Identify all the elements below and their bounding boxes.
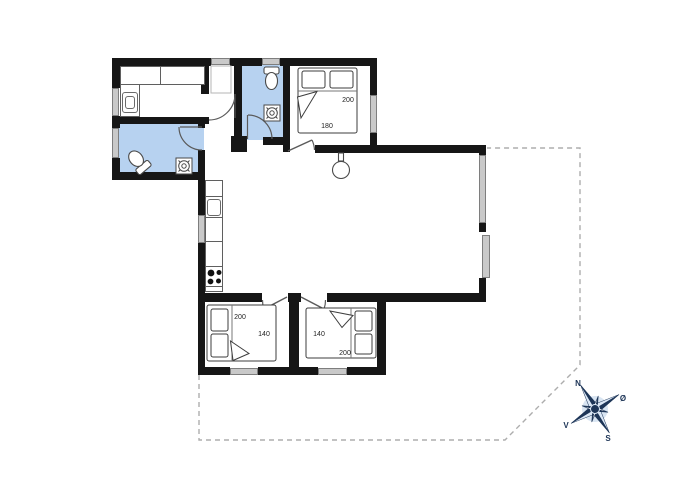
floorplan-canvas: 200 180 200 140 140 200 [0, 0, 700, 500]
plan-overlay: 200 180 200 140 140 200 [0, 0, 700, 500]
entrance-niche [211, 66, 231, 93]
compass-north-label: N [575, 379, 581, 388]
bed-width-label: 140 [313, 331, 325, 338]
bed-width-label: 180 [321, 123, 333, 130]
terrace-boundary-dashed [199, 148, 580, 440]
bed-width-label: 140 [258, 331, 270, 338]
bed-length-label: 200 [342, 97, 354, 104]
bathroom1-door-arc [179, 127, 202, 150]
bedroom-top-door-arc [312, 140, 315, 150]
compass-rose: N Ø S V [557, 371, 634, 448]
floor-drain-icon [176, 158, 192, 174]
bedroom-right-door-leaf [301, 297, 324, 309]
toilet-icon [264, 67, 279, 90]
floor-drain-icon [264, 105, 280, 121]
compass-south-label: S [605, 434, 611, 443]
entrance-door-arc [209, 94, 235, 120]
compass-west-label: V [563, 421, 569, 430]
bedroom-top-door-leaf [288, 140, 312, 151]
stove-burners-icon [208, 270, 222, 285]
toilet-icon [124, 147, 151, 175]
compass-east-label: Ø [620, 394, 626, 403]
ceiling-lamp-icon [333, 153, 350, 179]
bed-length-label: 200 [339, 350, 351, 357]
bed-length-label: 200 [234, 314, 246, 321]
